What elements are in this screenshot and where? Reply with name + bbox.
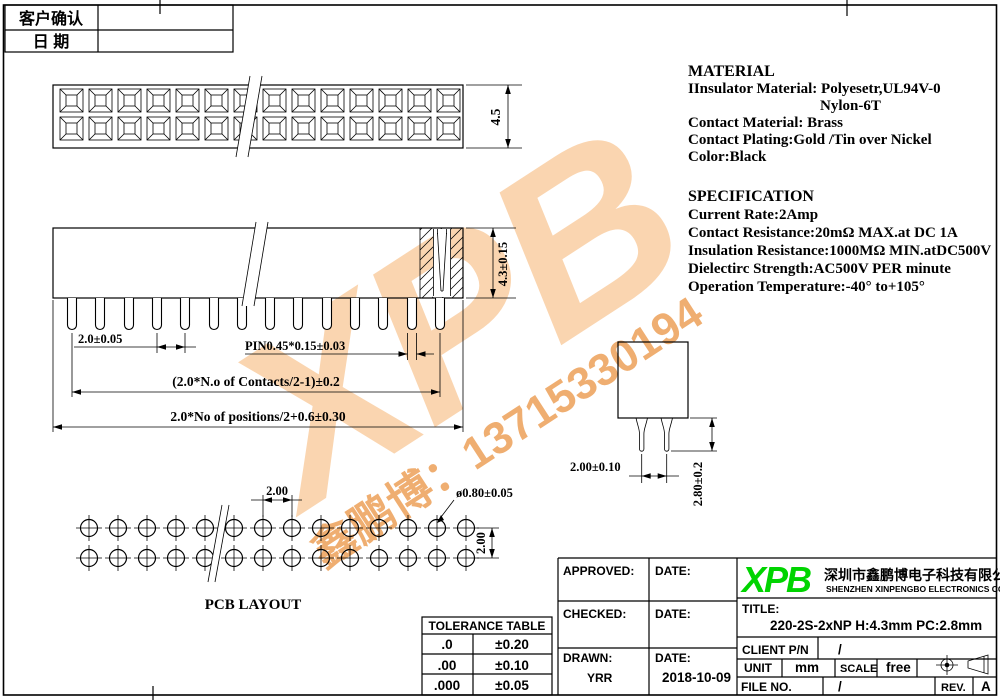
specification-line: Contact Resistance:20mΩ MAX.at DC 1A xyxy=(688,225,958,241)
title-value: 220-2S-2xNP H:4.3mm PC:2.8mm xyxy=(770,618,982,633)
unit-label: UNIT xyxy=(744,661,773,675)
material-line: Nylon-6T xyxy=(820,98,881,114)
tolerance-digits: .00 xyxy=(438,658,457,673)
tolerance-digits: .000 xyxy=(434,678,460,693)
date-row-label: 日 期 xyxy=(33,32,69,51)
specification-heading: SPECIFICATION xyxy=(688,188,814,205)
dim-pcb-hole-text: ø0.80±0.05 xyxy=(456,486,513,500)
rev-label: REV. xyxy=(941,682,966,694)
title-label: TITLE: xyxy=(742,602,779,616)
specification-line: Insulation Resistance:1000MΩ MIN.atDC500… xyxy=(688,243,991,259)
tolerance-value: ±0.20 xyxy=(495,637,529,652)
repeated-feature xyxy=(294,298,303,330)
tolerance-digits: .0 xyxy=(441,637,452,652)
dim-pitch-text: 2.0±0.05 xyxy=(78,332,122,346)
material-heading: MATERIAL xyxy=(688,63,775,80)
repeated-feature xyxy=(379,298,388,330)
date-label: DATE: xyxy=(655,651,691,665)
scale-value: free xyxy=(886,660,911,675)
file-no-value: / xyxy=(838,679,842,694)
specification-line: Current Rate:2Amp xyxy=(688,207,818,223)
dim-pcb-pitch-v-text: 2.00 xyxy=(474,532,488,554)
date-label: DATE: xyxy=(655,607,691,621)
material-line: IInsulator Material: Polyesetr,UL94V-0 xyxy=(688,81,941,97)
drawn-label: DRAWN: xyxy=(563,651,612,665)
repeated-feature xyxy=(96,298,105,330)
file-no-label: FILE NO. xyxy=(741,680,792,694)
client-pn-label: CLIENT P/N xyxy=(742,643,809,657)
repeated-feature xyxy=(68,298,77,330)
tolerance-value: ±0.05 xyxy=(495,678,529,693)
repeated-feature xyxy=(210,298,219,330)
confirm-label: 客户确认 xyxy=(19,9,84,28)
repeated-feature xyxy=(153,298,162,330)
unit-value: mm xyxy=(795,660,819,675)
dim-leg-spacing-text: 2.00±0.10 xyxy=(570,460,621,474)
material-line: Contact Plating:Gold /Tin over Nickel xyxy=(688,132,932,148)
material-line: Contact Material: Brass xyxy=(688,115,843,131)
specification-line: Dielectirc Strength:AC500V PER minute xyxy=(688,261,951,277)
dim-side-height-text: 4.3±0.15 xyxy=(496,242,510,286)
drawing-sheet: XPB 鑫鹏博：13715330194 客户确认 日 期 4.5 xyxy=(0,0,1000,700)
repeated-feature xyxy=(125,298,134,330)
dim-total-width-text: 2.0*No of positions/2+0.6±0.30 xyxy=(170,409,345,424)
pcb-layout-label: PCB LAYOUT xyxy=(205,597,302,613)
tolerance-table-title: TOLERANCE TABLE xyxy=(429,619,546,633)
client-pn-value: / xyxy=(838,642,842,657)
tolerance-value: ±0.10 xyxy=(495,658,529,673)
company-logo: XPB xyxy=(740,559,811,600)
repeated-feature xyxy=(323,298,332,330)
dim-pcb-pitch-h-text: 2.00 xyxy=(266,484,288,498)
company-name-cn: 深圳市鑫鹏博电子科技有限公司 xyxy=(824,567,1000,583)
drawn-date-value: 2018-10-09 xyxy=(662,670,731,685)
scale-label: SCALE xyxy=(840,663,877,675)
rev-value: A xyxy=(981,679,991,694)
repeated-feature xyxy=(266,298,275,330)
drawn-value: YRR xyxy=(587,671,613,685)
approved-label: APPROVED: xyxy=(563,564,634,578)
dim-leg-length-text: 2.80±0.2 xyxy=(691,462,705,506)
dim-top-height-text: 4.5 xyxy=(488,108,503,125)
repeated-feature xyxy=(351,298,360,330)
company-name-en: SHENZHEN XINPENGBO ELECTRONICS CO.LTD xyxy=(826,584,1000,594)
dim-pin-text: PIN0.45*0.15±0.03 xyxy=(245,339,345,353)
repeated-feature xyxy=(181,298,190,330)
checked-label: CHECKED: xyxy=(563,607,626,621)
repeated-feature xyxy=(408,298,417,330)
material-line: Color:Black xyxy=(688,149,767,165)
specification-line: Operation Temperature:-40° to+105° xyxy=(688,279,925,295)
dim-contacts-span-text: (2.0*N.o of Contacts/2-1)±0.2 xyxy=(172,374,340,389)
repeated-feature xyxy=(436,298,445,330)
date-label: DATE: xyxy=(655,564,691,578)
